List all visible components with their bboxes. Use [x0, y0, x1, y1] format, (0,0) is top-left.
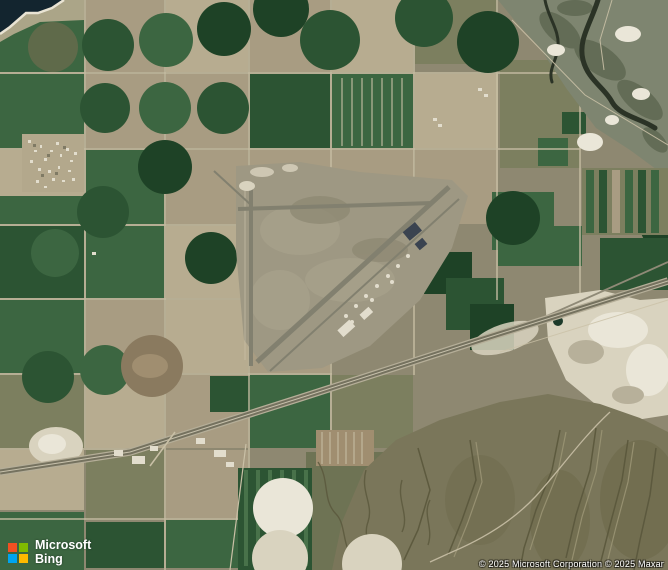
aerial-imagery — [0, 0, 668, 570]
logo-microsoft-text: Microsoft — [35, 539, 91, 553]
microsoft-logo-icon — [8, 543, 28, 563]
logo-bing-text: Bing — [35, 553, 91, 567]
map-canvas[interactable]: Microsoft Bing © 2025 Microsoft Corporat… — [0, 0, 668, 570]
town-area — [22, 134, 84, 192]
bing-logo[interactable]: Microsoft Bing — [8, 539, 91, 566]
copyright-text: © 2025 Microsoft Corporation © 2025 Maxa… — [479, 559, 664, 569]
